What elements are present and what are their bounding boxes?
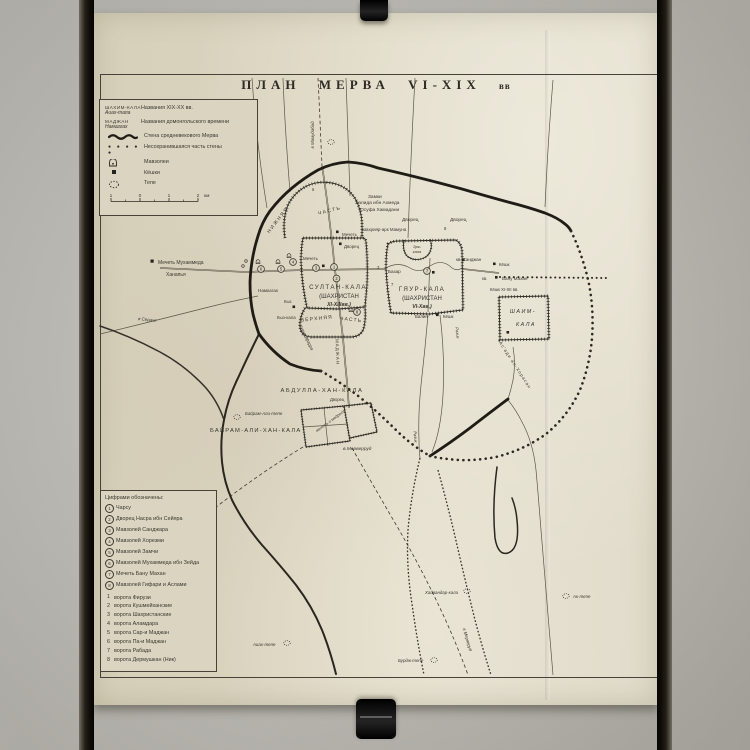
map-label-banu-makhan: Бану Махан bbox=[502, 276, 528, 281]
scale-bar: 1 0 1 2 км bbox=[105, 192, 253, 211]
map-label-gyaur-shahristan: (ШАХРИСТАН bbox=[402, 296, 442, 302]
site-number: 1 bbox=[105, 504, 114, 513]
gate-number: 4 bbox=[105, 621, 112, 627]
wall-lost-arc bbox=[430, 231, 593, 460]
site-label: Мавзолей Мухаммеда ибн Зейда bbox=[116, 559, 199, 566]
legend-example-old-2: Намазгах bbox=[105, 124, 141, 130]
site-label: Мечеть Бану Махан bbox=[116, 570, 166, 577]
tepe-symbol-icon bbox=[105, 180, 144, 189]
mausoleum-icon bbox=[276, 260, 280, 264]
legend-desc-koshk: Кёшки bbox=[144, 170, 160, 177]
map-label-shakhriyar-ark: Шахрияр-арк Мамуна bbox=[362, 227, 407, 232]
gate-number: 5 bbox=[105, 630, 112, 636]
map-label-kv-sandzhan: кв. Санджан bbox=[456, 257, 482, 262]
map-label-madzhan-canal: МАДЖАН bbox=[335, 339, 341, 365]
legend-site-row: 6Мавзолей Мухаммеда ибн Зейда bbox=[105, 559, 213, 568]
map-label-sultan-shahristan: (ШАХРИСТАН bbox=[319, 294, 359, 300]
site-marker-5: 5 bbox=[278, 266, 285, 273]
numbered-legend-heading: Цифрами обозначены: bbox=[105, 495, 213, 501]
symbol-legend-box: ШАХИМ-КАЛА Аиах-тапа Названия XIX-XX вв.… bbox=[99, 99, 258, 216]
map-label-kyz: Кыз bbox=[284, 299, 291, 304]
site-number: 3 bbox=[105, 526, 114, 535]
site-label: Мавзолей Хорезми bbox=[116, 537, 164, 544]
map-label-burdzh-tepe: Бурдж-тепе bbox=[398, 658, 424, 663]
gate-label: ворота Сар-и Маджан bbox=[114, 630, 169, 637]
wall-north bbox=[258, 162, 571, 236]
site-label: Дворец Насра ибн Сейяра bbox=[116, 515, 183, 522]
scale-tick: 2 bbox=[197, 193, 200, 199]
map-label-balin: Балин bbox=[415, 314, 428, 319]
gate-digit: 7 bbox=[391, 282, 394, 287]
legend-gate-row: 3ворота Шахристанские bbox=[105, 612, 213, 619]
tepe-icon bbox=[328, 140, 334, 145]
map-label-bazar: Базар bbox=[388, 269, 401, 274]
wall-south-west bbox=[259, 334, 321, 371]
gate-digit: 6 bbox=[312, 187, 315, 192]
map-label-yusufa: Юсуфа Хамадани bbox=[359, 207, 399, 213]
map-label-upper-part-1: ВЕРХНЯЯ bbox=[300, 314, 333, 323]
site-number: 8 bbox=[105, 581, 114, 590]
koshk-icon bbox=[432, 271, 435, 274]
map-label-zamki: Замки bbox=[368, 194, 382, 200]
bottom-clip bbox=[356, 699, 396, 739]
map-label-palace-4: Дворец bbox=[330, 397, 345, 402]
site-number: 5 bbox=[105, 548, 114, 557]
map-label-erk-2: кала bbox=[413, 249, 422, 254]
map-label-upper-part-2: ЧАСТЬ bbox=[340, 316, 363, 324]
legend-desc-new-names: Названия XIX-XX вв. bbox=[141, 105, 193, 112]
map-label-palace-1: Дворец bbox=[402, 217, 419, 223]
small-site-circle bbox=[245, 260, 248, 263]
map-label-mosque-2: Мечеть bbox=[303, 256, 319, 261]
legend-gate-row: 7ворота Рабада bbox=[105, 648, 213, 655]
legend-gate-row: 6ворота Па-и Маджан bbox=[105, 639, 213, 646]
legend-site-row: 5Мавзолей Замчи bbox=[105, 548, 213, 557]
map-label-sultan-dates: XI-XIIIвв.) bbox=[326, 302, 351, 308]
legend-gate-row: 2ворота Кушмейханские bbox=[105, 603, 213, 610]
gate-label: ворота Шахристанские bbox=[114, 612, 171, 619]
map-label-to-serakhs: в Серахс bbox=[138, 316, 158, 323]
koshk-icon bbox=[507, 331, 510, 334]
site-label: Мавзолей Гифари и Аслами bbox=[116, 581, 187, 588]
scale-unit: км bbox=[204, 194, 209, 199]
gate-number: 1 bbox=[105, 594, 112, 600]
gates-legend-block: 1ворота Фирузи 2ворота Кушмейханские 3во… bbox=[105, 594, 213, 664]
map-label-kv: кв. bbox=[482, 276, 487, 281]
legend-site-row: 8Мавзолей Гифари и Аслами bbox=[105, 581, 213, 590]
gate-number: 8 bbox=[105, 657, 112, 663]
legend-desc-old-names: Названия домонгольского времени bbox=[141, 119, 229, 126]
gate-number: 2 bbox=[105, 603, 112, 609]
map-label-koshk-dates: Кёшк XI-XII вв. bbox=[490, 287, 518, 292]
tepe-icon bbox=[284, 641, 290, 646]
legend-row-new-names: ШАХИМ-КАЛА Аиах-тапа Названия XIX-XX вв. bbox=[105, 105, 253, 116]
legend-row-tepe: Тепе bbox=[105, 180, 253, 189]
legend-row-lost-wall: ● ● ● ● ● Несохранившаяся часть стены bbox=[105, 144, 253, 156]
wall-west bbox=[250, 236, 259, 334]
site-number: 2 bbox=[105, 515, 114, 524]
legend-example-new-2: Аиах-тапа bbox=[105, 110, 141, 116]
map-label-merverrud: в.Мерверруд bbox=[343, 446, 372, 452]
gate-number: 7 bbox=[105, 648, 112, 654]
scale-tick: 1 bbox=[168, 193, 171, 199]
lost-wall-symbol-icon: ● ● ● ● ● bbox=[105, 144, 144, 156]
koshk-symbol-icon bbox=[105, 170, 144, 174]
legend-desc-lost-wall: Несохранившаяся часть стены bbox=[144, 144, 222, 151]
legend-row-old-names: МАДЖАН Намазгах Названия домонгольского … bbox=[105, 119, 253, 130]
site-marker-2: 2 bbox=[333, 275, 340, 282]
site-marker-4: 4 bbox=[290, 259, 297, 266]
legend-site-row: 1Чарсу bbox=[105, 504, 213, 513]
legend-site-row: 2Дворец Насра ибн Сейяра bbox=[105, 515, 213, 524]
site-number: 7 bbox=[105, 570, 114, 579]
map-label-razik-2: Разик bbox=[413, 431, 419, 444]
tepe-icon bbox=[431, 658, 437, 663]
map-label-to-mamudabad: в Мамудабад bbox=[310, 121, 315, 149]
gate-digit: 8 bbox=[444, 226, 447, 231]
legend-site-row: 4Мавзолей Хорезми bbox=[105, 537, 213, 546]
gate-label: ворота Аламдара bbox=[114, 621, 158, 628]
map-label-mosque-madrasa: мечеть и медресе bbox=[315, 408, 347, 433]
map-label-khayvandar-kala: Хайвандар-кала bbox=[424, 590, 459, 595]
mausoleum-icon bbox=[256, 260, 260, 264]
gate-number: 3 bbox=[105, 612, 112, 618]
legend-site-row: 7Мечеть Бану Махан bbox=[105, 570, 213, 579]
map-label-palace-3: Дворец bbox=[450, 217, 467, 223]
map-label-kyz-kala: Кыз-кала bbox=[277, 315, 296, 320]
canal-hook bbox=[494, 467, 518, 553]
wall-symbol-icon bbox=[105, 133, 144, 141]
gate-label: ворота Фирузи bbox=[114, 594, 151, 601]
road-to-merverud-dashed bbox=[352, 448, 468, 675]
site-label: Мавзолей Санджара bbox=[116, 526, 168, 533]
scale-tick: 0 bbox=[139, 193, 142, 199]
legend-gate-row: 5ворота Сар-и Маджан bbox=[105, 630, 213, 637]
site-marker-3: 3 bbox=[313, 265, 320, 272]
canal-southwest bbox=[221, 334, 336, 674]
numbered-legend-box: Цифрами обозначены: 1Чарсу 2Дворец Насра… bbox=[100, 490, 217, 672]
gate-number: 6 bbox=[105, 639, 112, 645]
legend-row-mausoleum: Мавзолеи bbox=[105, 159, 253, 167]
map-label-khanapya: Ханапья bbox=[166, 272, 186, 278]
site-marker-1: 1 bbox=[331, 264, 338, 271]
mausoleum-symbol-icon bbox=[105, 159, 144, 167]
gate-label: ворота Па-и Маджан bbox=[114, 639, 166, 646]
site-marker-7: 7 bbox=[424, 268, 431, 275]
top-clip bbox=[360, 0, 388, 21]
road-to-serakhs bbox=[100, 296, 258, 334]
site-number: 4 bbox=[105, 537, 114, 546]
koshk-icon bbox=[436, 314, 439, 317]
map-label-koshk-2: Кёшк bbox=[443, 314, 454, 319]
map-label-koshk-1: Кёшк bbox=[499, 262, 510, 267]
site-number: 6 bbox=[105, 559, 114, 568]
photo-background: ПЛАН МЕРВА VI-XIX вв bbox=[0, 0, 750, 750]
koshk-icon bbox=[151, 260, 154, 263]
scale-tick: 1 bbox=[110, 193, 113, 199]
legend-gate-row: 8ворота Дермушкан (Ник) bbox=[105, 657, 213, 664]
site-label: Мавзолей Замчи bbox=[116, 548, 158, 555]
site-marker-6: 6 bbox=[258, 266, 265, 273]
map-label-mosque-muhammeda: Мечеть Мухаммеда bbox=[158, 260, 204, 266]
gate-label: ворота Рабада bbox=[114, 648, 151, 655]
map-label-khalida: Халида ибн Ахмеда bbox=[355, 200, 400, 206]
map-label-abdulla-khan-kala: АБДУЛЛА-ХАН-КАЛА bbox=[280, 388, 363, 394]
mausoleum-icon bbox=[287, 254, 291, 258]
legend-desc-mausoleum: Мавзолеи bbox=[144, 159, 169, 166]
koshk-icon bbox=[339, 243, 342, 246]
koshk-icon bbox=[293, 306, 296, 309]
map-label-gyaur-dates: VI-Xвв.) bbox=[412, 304, 432, 310]
site-marker-8: 8 bbox=[354, 309, 361, 316]
legend-desc-tepe: Тепе bbox=[144, 180, 156, 187]
map-label-sultan-kala: СУЛТАН-КАЛА bbox=[309, 284, 367, 291]
legend-gate-row: 4ворота Аламдара bbox=[105, 621, 213, 628]
tepe-icon bbox=[563, 594, 569, 599]
koshk-icon bbox=[322, 265, 325, 268]
picture-frame-right-edge bbox=[657, 0, 672, 750]
legend-site-row: 3Мавзолей Санджара bbox=[105, 526, 213, 535]
picture-frame-left-edge bbox=[79, 0, 94, 750]
map-label-bayram-ali-khan-kala: БАЙРАМ-АЛИ-ХАН-КАЛА bbox=[210, 426, 301, 434]
gate-label: ворота Кушмейханские bbox=[114, 603, 172, 610]
site-label: Чарсу bbox=[116, 504, 131, 511]
gate-label: ворота Дермушкан (Ник) bbox=[114, 657, 176, 664]
map-label-lower-part-2: ЧАСТЬ bbox=[317, 205, 342, 217]
map-label-to-merverud: в Мерверуд bbox=[462, 628, 473, 653]
koshk-icon bbox=[336, 231, 339, 234]
tepe-icon bbox=[234, 415, 240, 420]
legend-desc-wall: Стена средневекового Мерва bbox=[144, 133, 218, 140]
small-site-circle bbox=[242, 265, 245, 268]
map-label-shaim-2: КАЛА bbox=[516, 322, 536, 328]
legend-row-wall: Стена средневекового Мерва bbox=[105, 133, 253, 141]
koshk-icon bbox=[495, 276, 498, 279]
map-label-razik-1: Разик bbox=[454, 327, 460, 340]
map-label-mosque-1: Мечеть bbox=[342, 232, 358, 237]
map-label-aiah-tepe: Аиах-тепе bbox=[252, 642, 276, 647]
koshk-icon bbox=[493, 263, 496, 266]
map-label-namazgah: Намазгах bbox=[258, 288, 279, 293]
legend-gate-row: 1ворота Фирузи bbox=[105, 594, 213, 601]
map-label-palace-2: Дворец bbox=[344, 244, 360, 249]
legend-row-koshk: Кёшки bbox=[105, 170, 253, 177]
map-label-bayram-ali-tepe: Байрам-Али-тепе bbox=[245, 411, 283, 416]
map-label-ak-tepe: Ак-тепе bbox=[572, 594, 591, 599]
map-label-gyaur-kala: ГЯУР-КАЛА bbox=[399, 286, 445, 293]
map-label-shaim-1: ШАИМ- bbox=[510, 309, 536, 315]
road-north-dashed bbox=[318, 78, 322, 166]
canal-razik bbox=[408, 458, 425, 675]
map-label-asadi-khorasan: Ас'ади ал-Хорасан bbox=[498, 341, 532, 390]
